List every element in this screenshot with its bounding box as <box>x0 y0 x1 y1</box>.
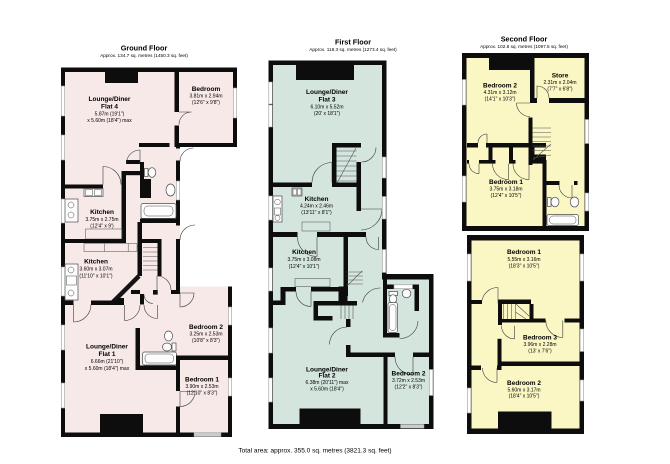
svg-text:(13' x 7'6"): (13' x 7'6") <box>528 349 552 355</box>
svg-text:6.66m (21'10"): 6.66m (21'10") <box>91 359 124 365</box>
svg-text:Approx. 118.3 sq. metres (1273: Approx. 118.3 sq. metres (1273.4 sq. fee… <box>309 47 397 52</box>
svg-text:(10'8" x 8'3"): (10'8" x 8'3") <box>192 338 220 344</box>
svg-text:(12'4" x 10'1"): (12'4" x 10'1") <box>289 264 320 270</box>
svg-text:Bedroom 2: Bedroom 2 <box>483 83 517 90</box>
svg-text:Flat 1: Flat 1 <box>99 351 116 358</box>
svg-text:(12'2" x 8'3"): (12'2" x 8'3") <box>395 385 423 391</box>
svg-text:3.75m x 3.18m: 3.75m x 3.18m <box>489 187 522 193</box>
svg-text:Bedroom 1: Bedroom 1 <box>507 249 541 256</box>
svg-text:Kitchen: Kitchen <box>292 249 316 256</box>
svg-text:Ground Floor: Ground Floor <box>121 44 168 53</box>
svg-text:(14'1" x 10'3"): (14'1" x 10'3") <box>485 97 516 103</box>
svg-text:(13'11" x 8'1"): (13'11" x 8'1") <box>301 210 332 216</box>
svg-text:(12'6" x 9'8"): (12'6" x 9'8") <box>192 100 220 106</box>
svg-text:(18'3" x 10'5"): (18'3" x 10'5") <box>509 264 540 270</box>
svg-text:Bedroom 1: Bedroom 1 <box>489 179 523 186</box>
svg-text:Lounge/Diner: Lounge/Diner <box>86 344 128 351</box>
svg-text:Lounge/Diner: Lounge/Diner <box>306 89 348 96</box>
svg-text:(20' x 18'1"): (20' x 18'1") <box>314 111 341 117</box>
svg-text:(12'4" x 9'): (12'4" x 9') <box>90 224 114 230</box>
svg-text:x 5.60m (18'4") max: x 5.60m (18'4") max <box>87 118 132 124</box>
svg-text:(7'7" x 6'8"): (7'7" x 6'8") <box>547 87 573 93</box>
svg-text:(12'10" x 8'3"): (12'10" x 8'3") <box>187 391 218 397</box>
svg-text:3.90m x 2.53m: 3.90m x 2.53m <box>185 384 218 390</box>
svg-text:2.31m x 2.04m: 2.31m x 2.04m <box>543 80 576 86</box>
svg-text:5.55m x 3.16m: 5.55m x 3.16m <box>507 257 540 263</box>
svg-text:Bedroom 2: Bedroom 2 <box>189 324 223 331</box>
svg-text:(12'4" x 10'5"): (12'4" x 10'5") <box>491 193 522 199</box>
svg-text:Store: Store <box>552 73 569 80</box>
svg-text:x 5.60m (18'4"): x 5.60m (18'4") <box>310 387 344 393</box>
svg-text:Approx. 102.8 sq. metres (1097: Approx. 102.8 sq. metres (1097.5 sq. fee… <box>480 44 568 49</box>
svg-text:4.31m x 3.12m: 4.31m x 3.12m <box>483 90 516 96</box>
svg-text:Bedroom 1: Bedroom 1 <box>185 377 219 384</box>
svg-text:Bedroom 2: Bedroom 2 <box>392 371 426 378</box>
svg-text:Lounge/Diner: Lounge/Diner <box>89 96 131 103</box>
svg-text:6.38m (20'11") max: 6.38m (20'11") max <box>306 380 349 386</box>
svg-text:3.96m x 2.28m: 3.96m x 2.28m <box>523 342 556 348</box>
svg-text:3.81m x 2.94m: 3.81m x 2.94m <box>189 94 222 100</box>
svg-text:Bedroom: Bedroom <box>192 86 221 93</box>
svg-text:Flat 4: Flat 4 <box>101 104 118 111</box>
svg-text:Kitchen: Kitchen <box>305 196 329 203</box>
svg-text:6.10m x 5.52m: 6.10m x 5.52m <box>310 105 343 111</box>
svg-text:4.24m x 2.46m: 4.24m x 2.46m <box>300 204 333 210</box>
svg-text:3.75m x 3.08m: 3.75m x 3.08m <box>287 257 320 263</box>
svg-text:3.25m x 2.53m: 3.25m x 2.53m <box>189 332 222 338</box>
svg-text:Kitchen: Kitchen <box>90 209 114 216</box>
svg-text:First Floor: First Floor <box>335 37 371 46</box>
svg-text:Flat 2: Flat 2 <box>319 373 336 380</box>
svg-text:Second Floor: Second Floor <box>501 35 548 44</box>
svg-text:Flat 3: Flat 3 <box>319 97 336 104</box>
svg-text:(11'10" x 10'1"): (11'10" x 10'1") <box>79 274 112 280</box>
svg-text:Approx. 134.7 sq. metres (1450: Approx. 134.7 sq. metres (1450.3 sq. fee… <box>100 53 188 58</box>
svg-text:Bedroom 3: Bedroom 3 <box>523 335 557 342</box>
svg-text:Bedroom 2: Bedroom 2 <box>507 380 541 387</box>
svg-text:3.75m x 2.75m: 3.75m x 2.75m <box>85 217 118 223</box>
svg-text:Kitchen: Kitchen <box>84 259 108 266</box>
svg-text:x 5.60m (18'4") max: x 5.60m (18'4") max <box>85 366 130 372</box>
svg-text:Total area: approx. 355.0 sq.: Total area: approx. 355.0 sq. metres (38… <box>238 448 391 455</box>
svg-text:3.72m x 2.53m: 3.72m x 2.53m <box>392 378 425 384</box>
svg-text:3.60m x 3.07m: 3.60m x 3.07m <box>79 267 112 273</box>
svg-text:5.87m (19'1"): 5.87m (19'1") <box>95 112 125 118</box>
svg-text:(18'4" x 10'5"): (18'4" x 10'5") <box>509 394 540 400</box>
